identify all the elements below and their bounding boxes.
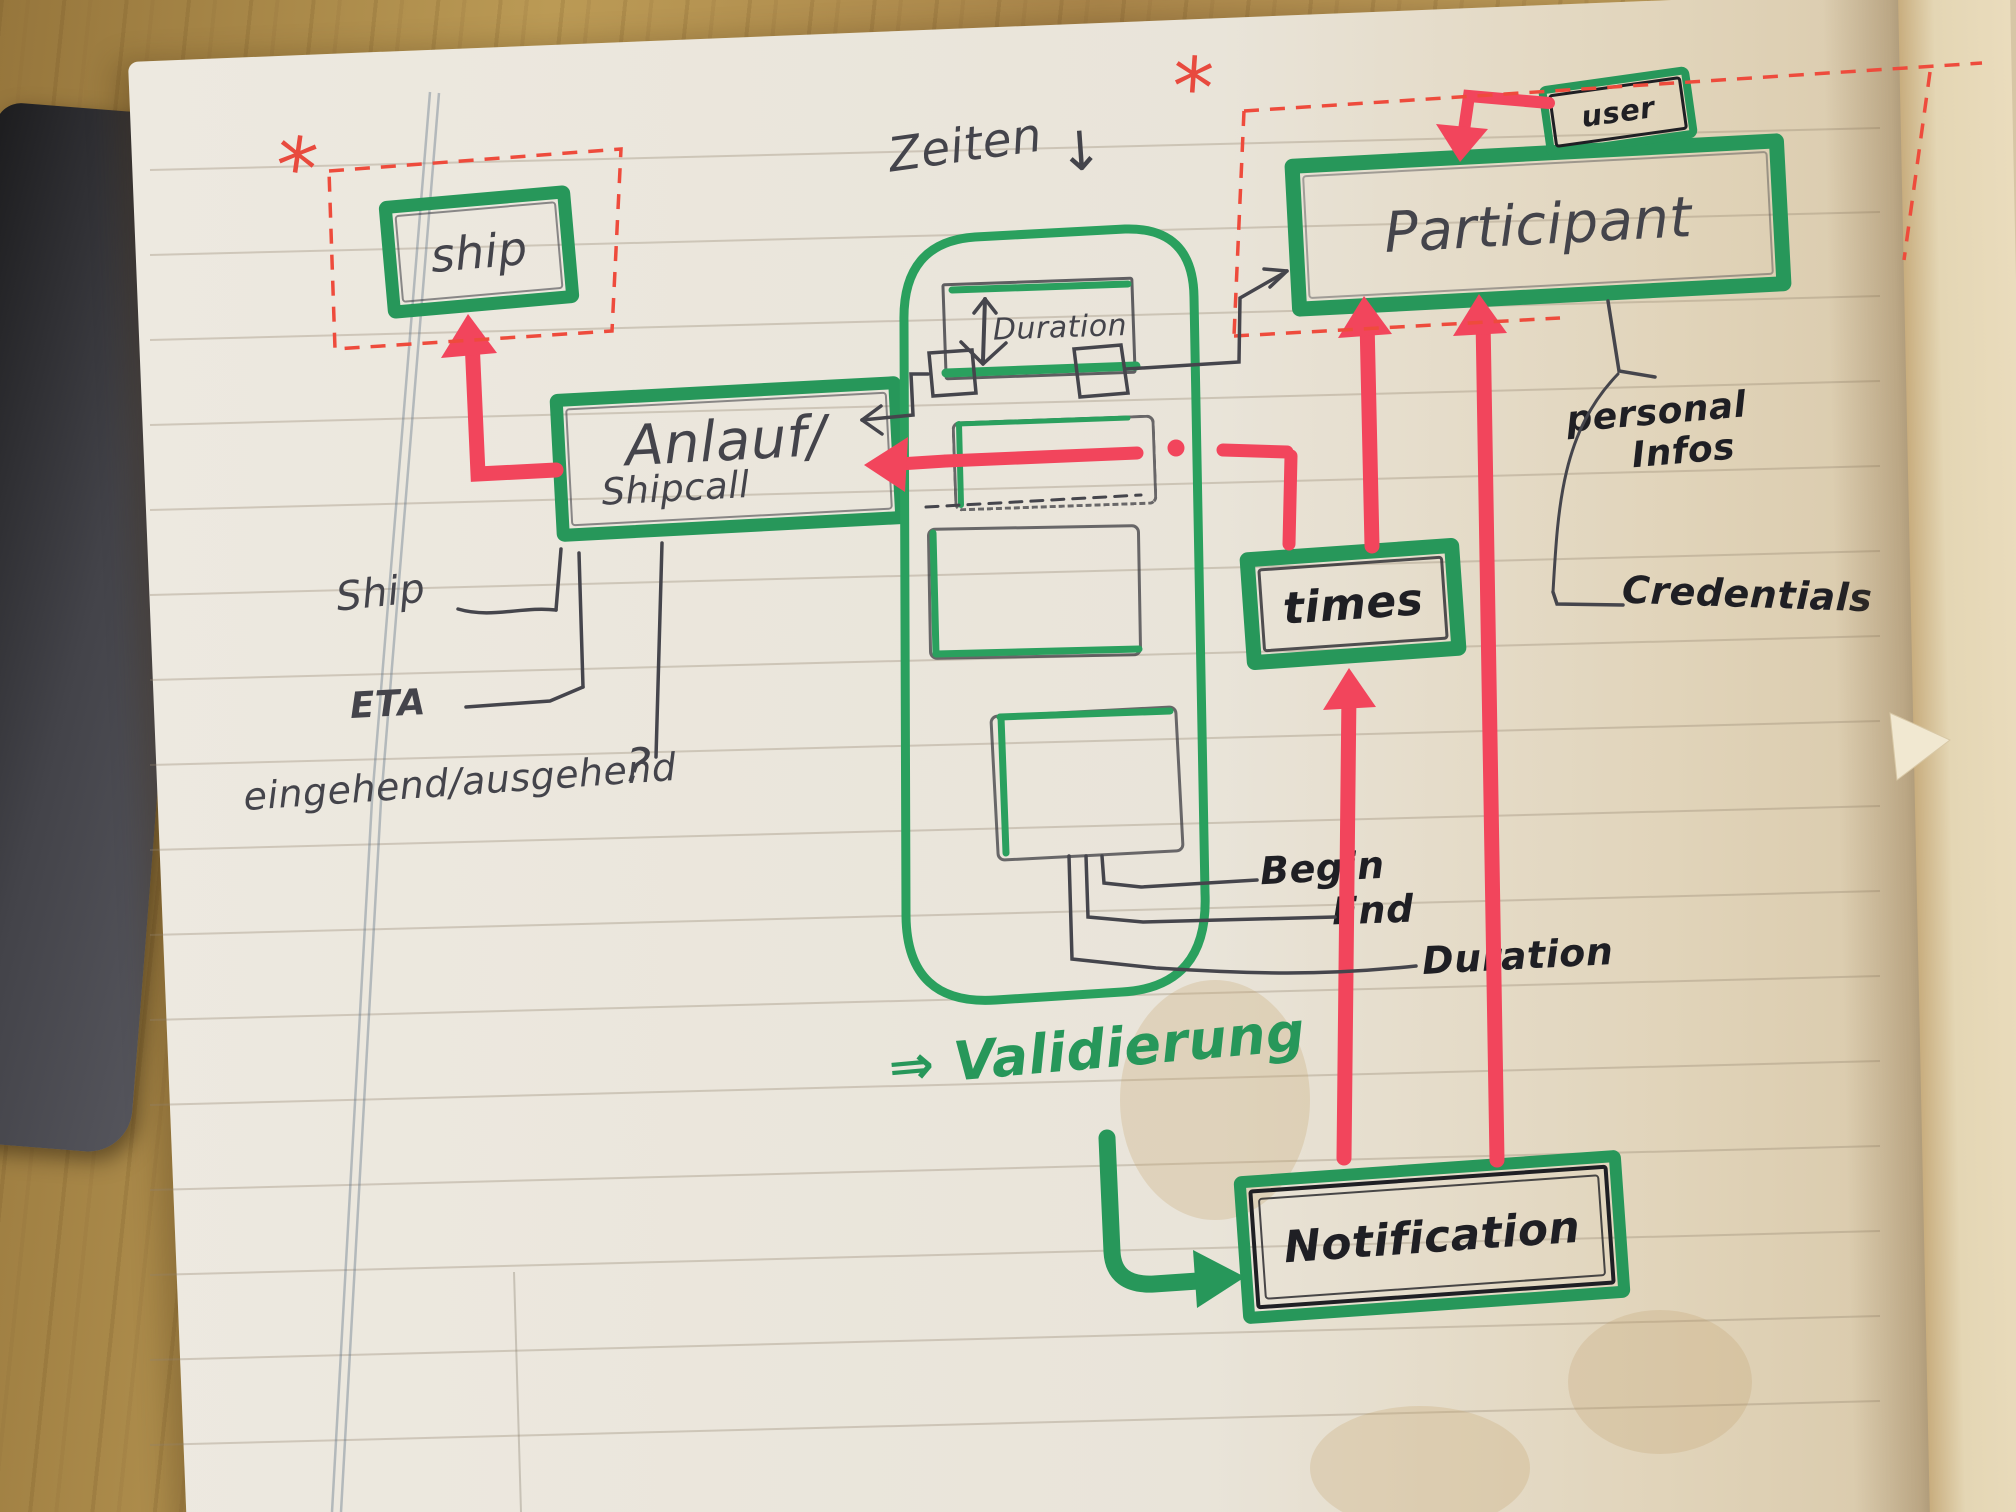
- torn-paper-bit: [1890, 713, 1950, 780]
- notification-to-times-arrow: [1344, 692, 1349, 1158]
- dashed-region-participant-top: [1244, 63, 1982, 111]
- times-to-anlauf-arrow-start: [1289, 456, 1291, 544]
- begin-attr-link: [1102, 856, 1257, 887]
- duration-attr-link: [1069, 856, 1416, 973]
- ink-strokes: [0, 0, 2016, 1512]
- end-attr-link: [1086, 856, 1335, 922]
- validation-to-notification-arrow: [1107, 1138, 1198, 1284]
- dashed-region-ship: [329, 149, 621, 349]
- ship-attr-link: [458, 609, 556, 613]
- notification-to-participant-arrow: [1483, 318, 1497, 1160]
- duration-updown-arrow: [983, 299, 985, 360]
- eta-attr-link: [466, 687, 583, 707]
- inout-attr-link: [656, 543, 662, 757]
- notebook-photo: ship Anlauf/ Shipcall Duration Participa…: [0, 0, 2016, 1512]
- dashed-regions: [329, 63, 1982, 349]
- credentials-link: [1553, 592, 1623, 605]
- duration-to-participant-link: [1126, 274, 1282, 369]
- anlauf-to-ship-arrow: [472, 340, 556, 474]
- personal-infos-link: [1608, 301, 1655, 377]
- pencil-connectors: [458, 269, 1655, 973]
- red-dash-dot: [1168, 440, 1185, 457]
- red-arrowheads: [441, 124, 1507, 710]
- arrowhead-right: [1193, 1250, 1245, 1308]
- times-to-participant-arrow: [1367, 320, 1372, 546]
